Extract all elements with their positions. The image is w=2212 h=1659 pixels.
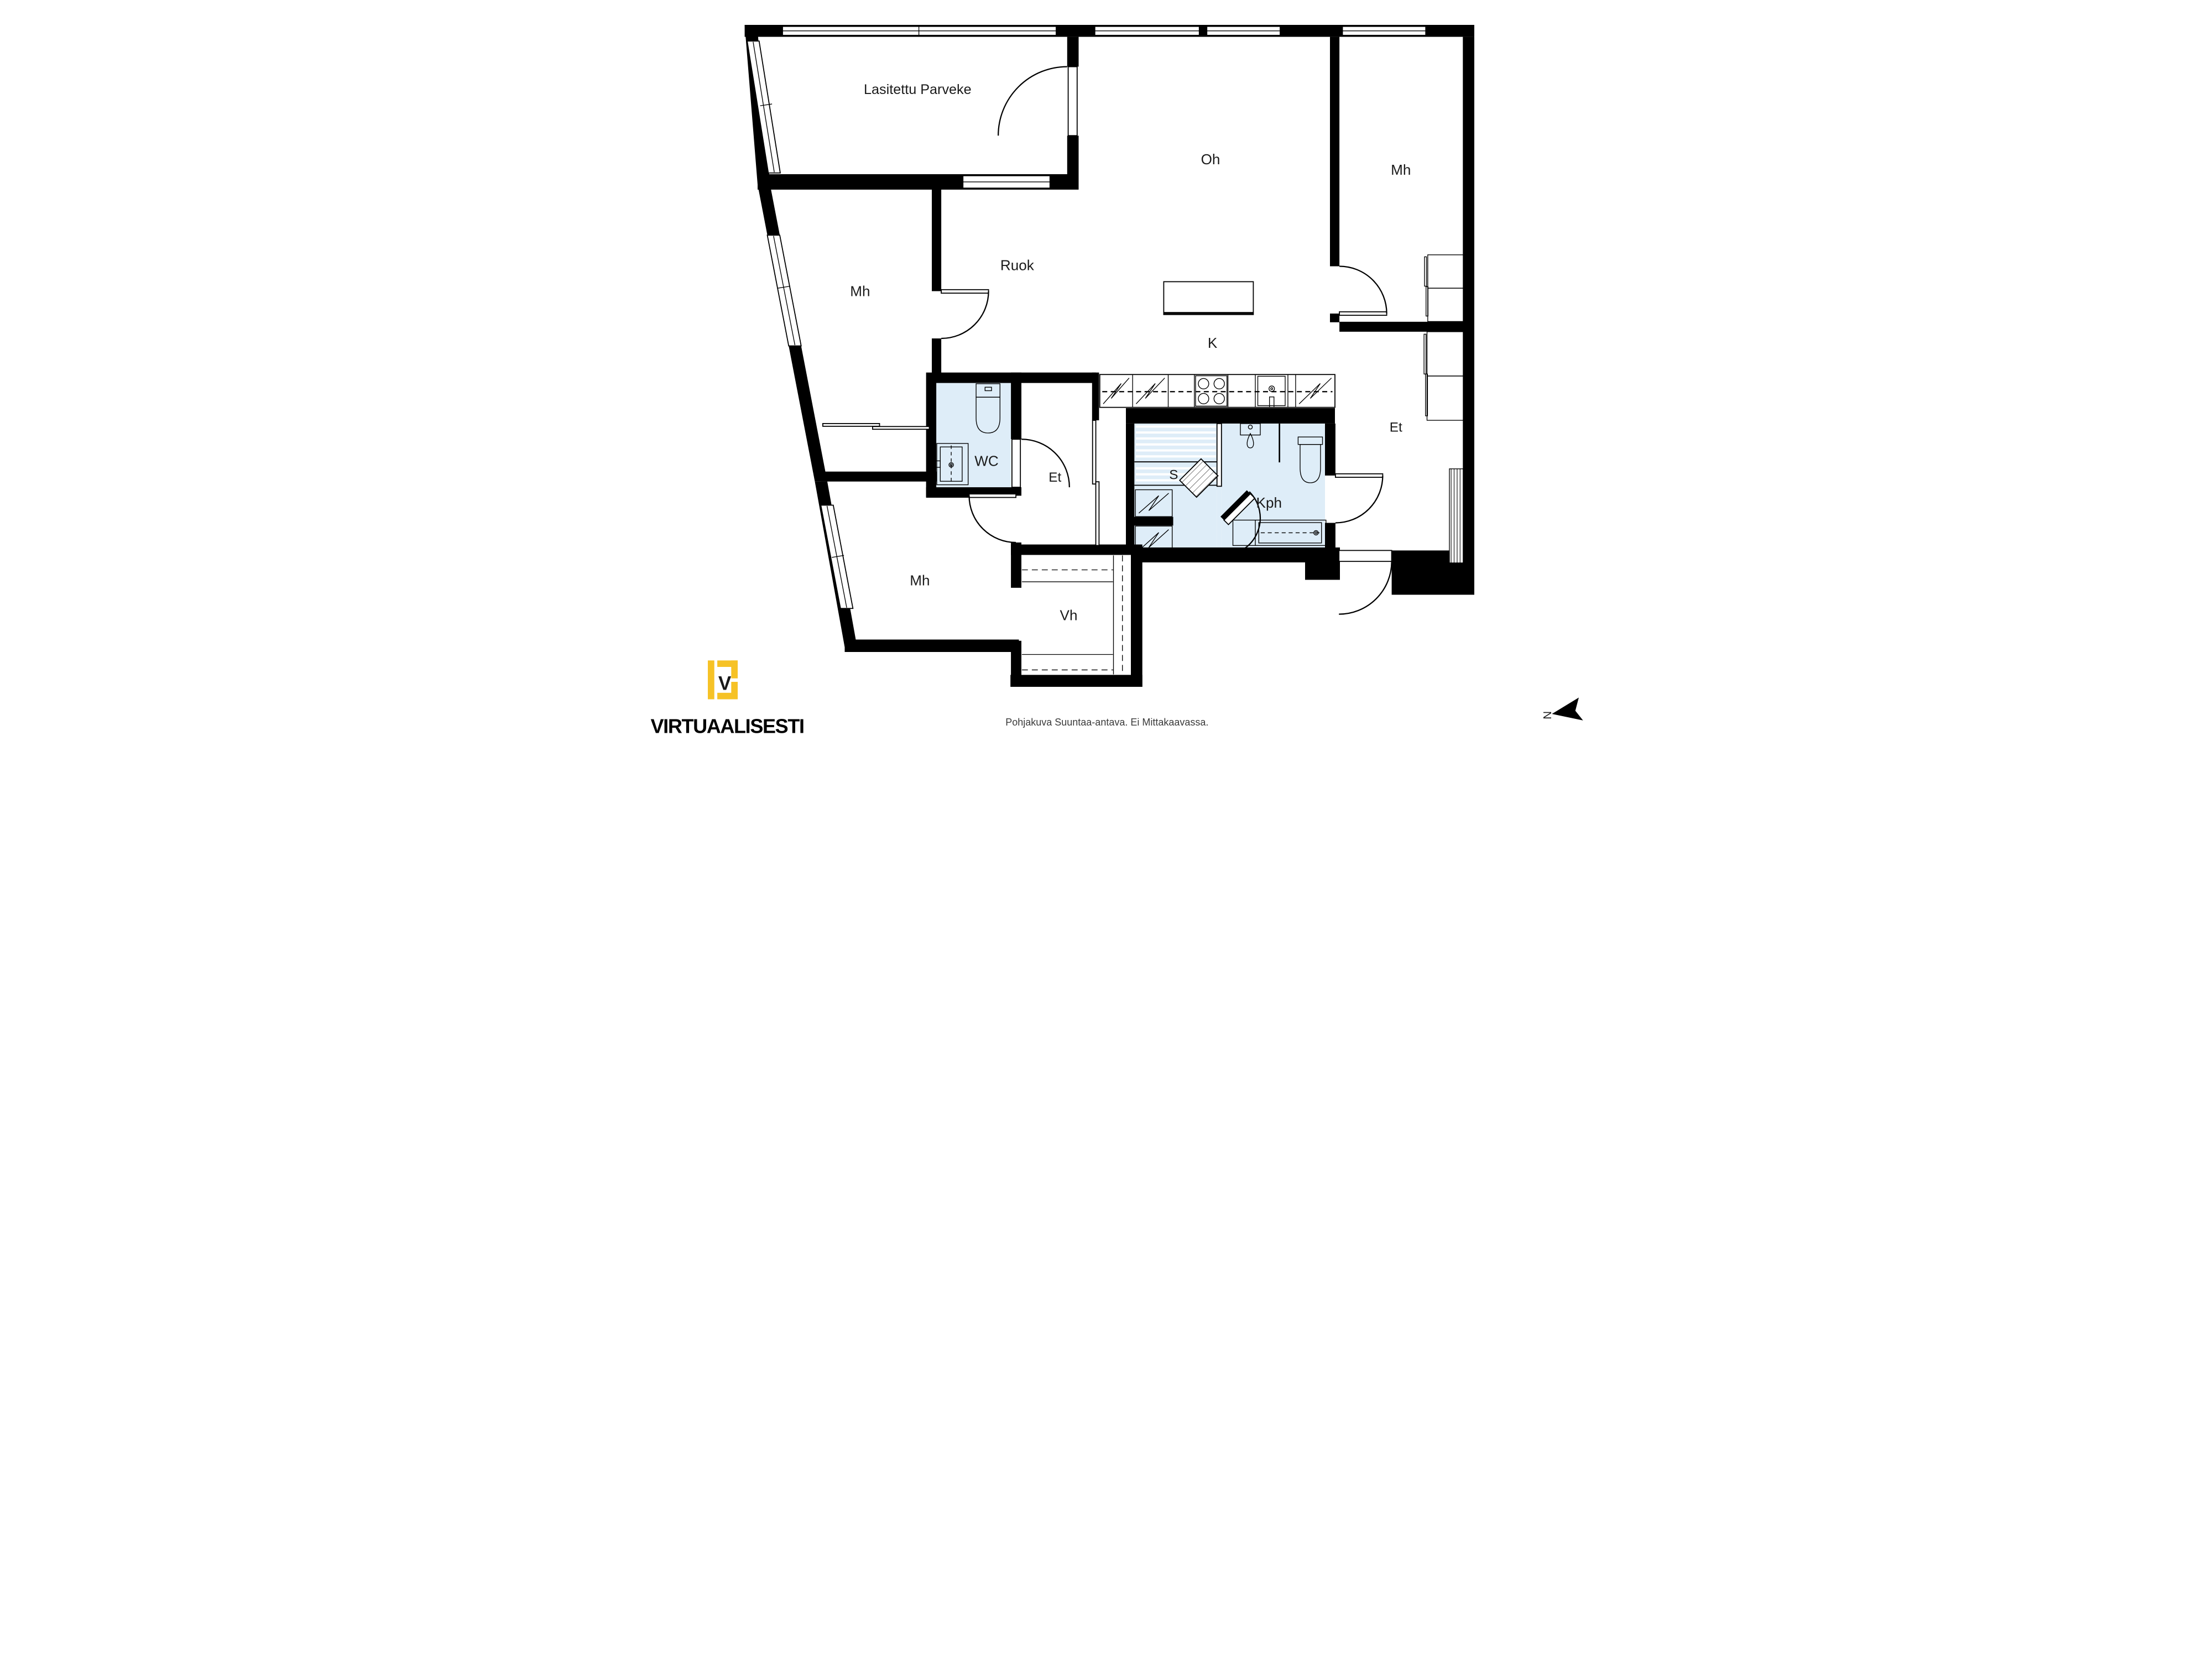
kitchen-island xyxy=(1164,281,1253,314)
bedroom-top-right-window xyxy=(1343,27,1426,35)
logo: V VIRTUAALISESTI xyxy=(651,660,804,737)
kitchen-sliding-door xyxy=(1093,420,1099,545)
room-label-living-room: Oh xyxy=(1201,151,1220,168)
wardrobes-hall-right xyxy=(1424,332,1465,420)
room-label-bathroom: Kph xyxy=(1256,494,1282,511)
compass-north-label: N xyxy=(1541,711,1553,719)
sauna-glass-wall xyxy=(1217,424,1222,486)
room-label-dining: Ruok xyxy=(1000,257,1035,273)
room-label-bedroom-top-right: Mh xyxy=(1391,161,1411,178)
living-room-window-1 xyxy=(1095,27,1199,35)
floorplan-drawing: Lasitettu Parveke Oh Mh Ruok Mh K WC Et … xyxy=(608,0,1604,747)
bathroom-floor xyxy=(1222,424,1325,551)
room-label-wc: WC xyxy=(974,452,998,469)
compass: N xyxy=(1541,697,1583,720)
dining-balcony-window xyxy=(963,176,1050,189)
room-label-balcony: Lasitettu Parveke xyxy=(864,82,972,97)
room-label-walk-in-closet: Vh xyxy=(1060,607,1078,623)
bedroom-bottom-left-door xyxy=(969,494,1022,542)
logo-wordmark: VIRTUAALISESTI xyxy=(651,715,804,738)
balcony-door xyxy=(998,67,1078,136)
walls xyxy=(745,25,1474,687)
floorplan-sheet: Lasitettu Parveke Oh Mh Ruok Mh K WC Et … xyxy=(608,0,1604,747)
room-label-bedroom-left: Mh xyxy=(850,283,870,300)
balcony-top-window xyxy=(782,27,1056,35)
bedroom-left-window xyxy=(768,235,801,346)
wardrobes-bedroom-top-right xyxy=(1425,255,1465,322)
living-room-window-2 xyxy=(1207,27,1280,35)
towel-rail xyxy=(1279,424,1280,462)
room-label-sauna: S xyxy=(1169,468,1178,483)
bathroom-door xyxy=(1325,474,1383,523)
room-label-bedroom-bottom-left: Mh xyxy=(910,572,930,588)
room-label-hall-right: Et xyxy=(1390,420,1402,435)
north-arrow-icon xyxy=(1552,697,1583,720)
disclaimer-text: Pohjakuva Suuntaa-antava. Ei Mittakaavas… xyxy=(1005,717,1208,728)
room-label-hall-center: Et xyxy=(1048,470,1061,485)
logo-monogram: V xyxy=(718,672,732,694)
bedroom-left-door xyxy=(931,290,988,338)
room-label-kitchen: K xyxy=(1208,335,1218,351)
entry-door xyxy=(1339,550,1391,614)
coat-rack xyxy=(1449,469,1463,563)
closet-sliding-doors xyxy=(823,424,930,429)
bedroom-top-right-door xyxy=(1330,267,1387,316)
kitchen-counter xyxy=(1100,374,1335,407)
